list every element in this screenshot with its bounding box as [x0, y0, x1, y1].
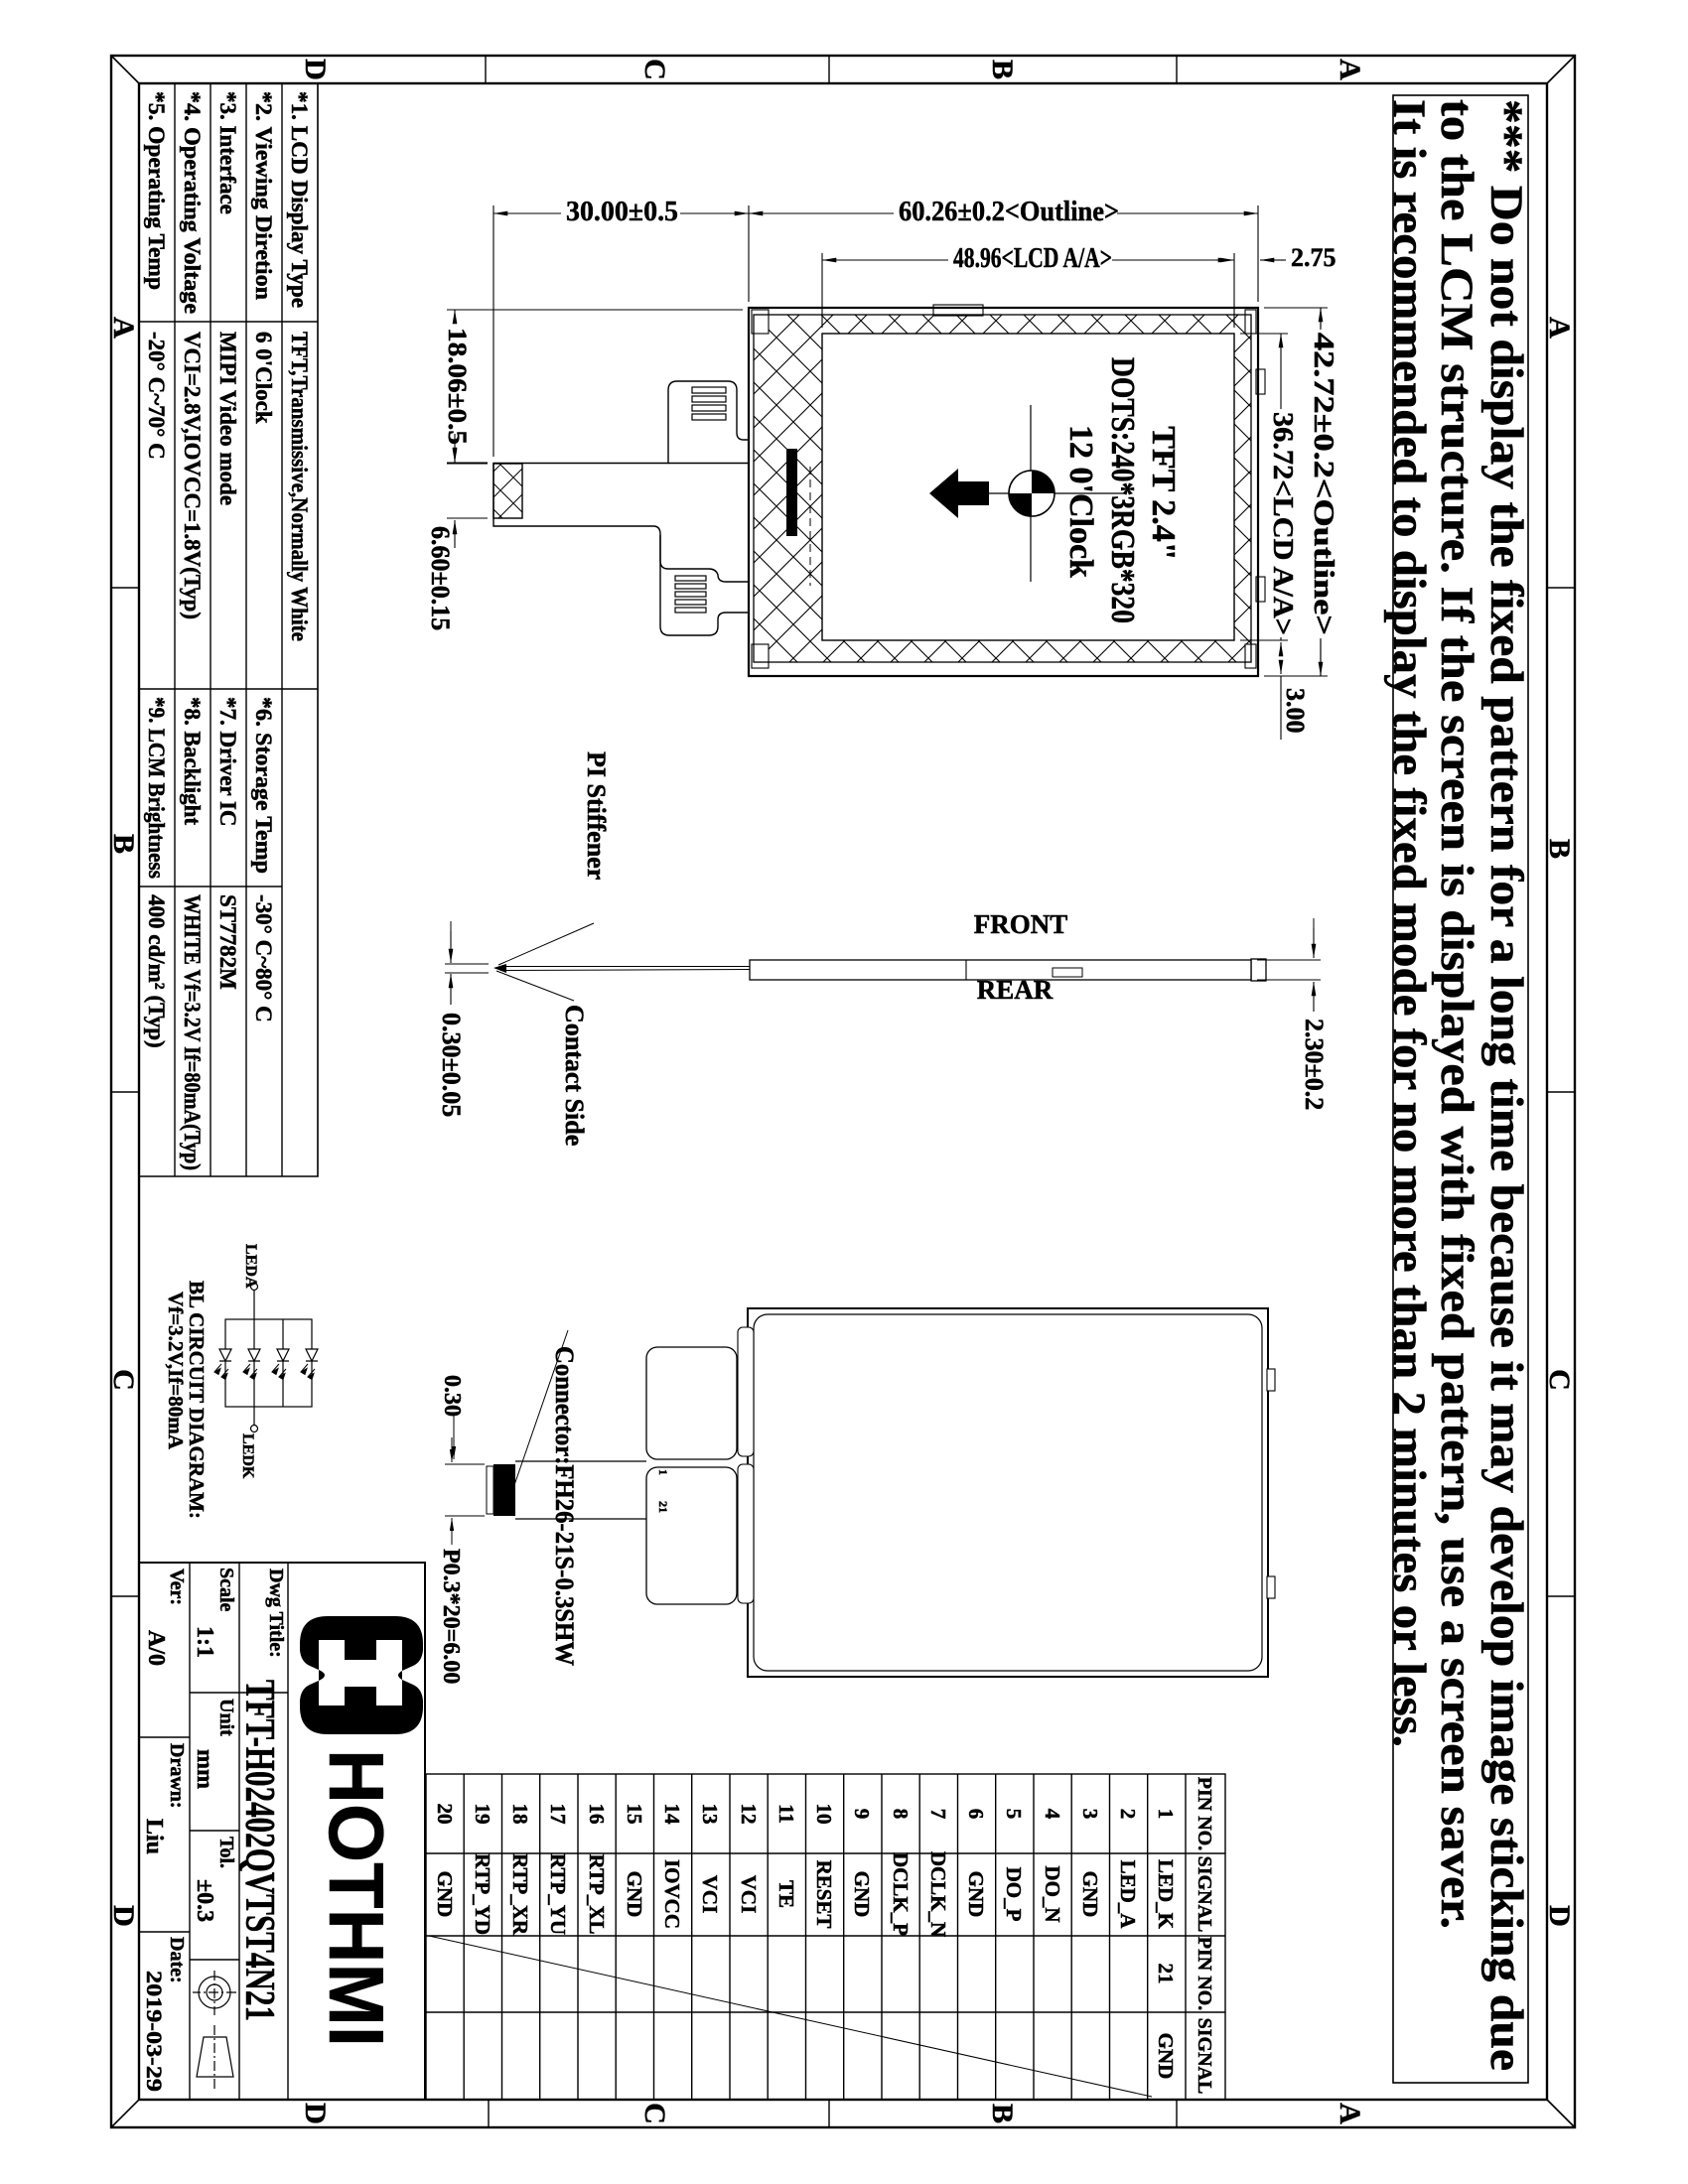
svg-text:60.26±0.2<Outline>: 60.26±0.2<Outline> [899, 196, 1119, 227]
svg-text:MIPI Video mode: MIPI Video mode [215, 332, 240, 505]
svg-text:Date:: Date: [166, 1937, 188, 1983]
svg-text:13: 13 [698, 1804, 722, 1825]
svg-text:1:1: 1:1 [192, 1626, 217, 1658]
svg-text:A: A [107, 317, 140, 339]
svg-text:6: 6 [964, 1809, 988, 1820]
svg-text:to the LCM structure. If the s: to the LCM structure. If the screen is d… [1431, 99, 1482, 1929]
svg-text:5: 5 [1002, 1809, 1026, 1820]
svg-text:B: B [986, 60, 1019, 79]
svg-text:DO_N: DO_N [1041, 1865, 1064, 1922]
svg-text:0.30: 0.30 [439, 1375, 465, 1417]
svg-text:Liu: Liu [141, 1819, 167, 1854]
svg-text:SIGNAL: SIGNAL [1194, 2018, 1215, 2095]
svg-text:DO_P: DO_P [1002, 1867, 1026, 1922]
svg-text:Drawn:: Drawn: [166, 1743, 188, 1809]
svg-text:*3. Interface: *3. Interface [215, 91, 240, 214]
svg-text:*2. Viewing Diretion: *2. Viewing Diretion [251, 91, 276, 300]
svg-text:RTP_XL: RTP_XL [585, 1854, 609, 1935]
svg-text:Ver:: Ver: [166, 1569, 188, 1605]
svg-text:LED_K: LED_K [1154, 1859, 1178, 1930]
svg-text:RTP_XR: RTP_XR [508, 1853, 532, 1936]
svg-text:C: C [638, 2103, 671, 2124]
svg-text:14: 14 [660, 1804, 684, 1826]
svg-text:36.72<LCD A/A>: 36.72<LCD A/A> [1267, 412, 1299, 635]
svg-text:10: 10 [812, 1804, 836, 1825]
svg-text:18.06±0.5: 18.06±0.5 [443, 328, 472, 445]
svg-text:Scale: Scale [215, 1568, 237, 1612]
svg-text:PI Stiffener: PI Stiffener [582, 751, 611, 880]
svg-text:-20° C~70° C: -20° C~70° C [144, 332, 169, 460]
svg-text:RESET: RESET [812, 1860, 836, 1929]
svg-text:A: A [1543, 317, 1576, 339]
svg-text:18: 18 [508, 1804, 532, 1825]
svg-text:HOTHMI: HOTHMI [313, 1749, 400, 2047]
svg-text:*7. Driver IC: *7. Driver IC [215, 697, 240, 827]
svg-text:42.72±0.2<Outline>: 42.72±0.2<Outline> [1308, 333, 1339, 635]
svg-text:P0.3*20=6.00: P0.3*20=6.00 [438, 1549, 464, 1684]
svg-text:IOVCC: IOVCC [660, 1859, 684, 1929]
svg-text:Connector:FH26-21S-0.3SHW: Connector:FH26-21S-0.3SHW [550, 1346, 579, 1666]
svg-text:RTP_YU: RTP_YU [546, 1853, 570, 1935]
svg-text:Vf=3.2V,If=80mA: Vf=3.2V,If=80mA [164, 1292, 188, 1450]
svg-text:12: 12 [737, 1804, 761, 1825]
svg-text:*1. LCD Display Type: *1. LCD Display Type [287, 91, 312, 308]
svg-text:C: C [1543, 1369, 1576, 1391]
svg-text:FRONT: FRONT [974, 909, 1068, 939]
svg-text:3: 3 [1078, 1809, 1102, 1820]
svg-text:RTP_YD: RTP_YD [471, 1853, 494, 1935]
svg-text:A/0: A/0 [143, 1630, 169, 1666]
svg-text:VCI: VCI [737, 1875, 761, 1914]
svg-text:DCLK_P: DCLK_P [889, 1852, 913, 1936]
svg-text:TFT,Transmissive,Normally Whit: TFT,Transmissive,Normally White [287, 332, 312, 641]
svg-text:2019-03-29: 2019-03-29 [142, 1971, 167, 2092]
svg-text:DCLK_N: DCLK_N [926, 1851, 950, 1937]
svg-text:*5. Operating Temp: *5. Operating Temp [144, 91, 169, 290]
svg-text:B: B [1543, 839, 1576, 859]
svg-text:mm: mm [192, 1749, 217, 1789]
svg-text:Dwg Title:: Dwg Title: [265, 1569, 287, 1658]
svg-text:A: A [1334, 2103, 1366, 2124]
svg-text:LED_A: LED_A [1116, 1860, 1140, 1930]
svg-text:TE: TE [774, 1880, 798, 1908]
svg-text:30.00±0.5: 30.00±0.5 [566, 196, 678, 227]
svg-text:TFT 2.4": TFT 2.4" [1145, 426, 1182, 560]
svg-text:15: 15 [623, 1804, 646, 1825]
svg-text:*9. LCM Brightness: *9. LCM Brightness [144, 697, 169, 879]
svg-text:17: 17 [546, 1804, 570, 1825]
svg-text:400 cd/m² (Typ): 400 cd/m² (Typ) [144, 894, 169, 1048]
svg-text:B: B [107, 834, 140, 854]
svg-text:WHITE Vf=3.2V If=80mA(Typ): WHITE Vf=3.2V If=80mA(Typ) [180, 894, 205, 1170]
svg-text:LEDK: LEDK [239, 1433, 256, 1479]
svg-text:PIN NO.: PIN NO. [1194, 1777, 1215, 1850]
svg-text:9: 9 [850, 1809, 874, 1820]
svg-text:D: D [299, 2103, 332, 2124]
svg-text:PIN NO.: PIN NO. [1194, 1937, 1215, 2010]
svg-text:1: 1 [1154, 1809, 1178, 1820]
svg-text:GND: GND [433, 1871, 457, 1918]
svg-text:16: 16 [585, 1804, 609, 1825]
svg-text:GND: GND [1078, 1871, 1102, 1918]
svg-text:4: 4 [1041, 1809, 1064, 1820]
svg-text:C: C [638, 59, 671, 80]
svg-text:6 0'Clock: 6 0'Clock [251, 332, 276, 424]
svg-text:VCI=2.8V,IOVCC=1.8V(Typ): VCI=2.8V,IOVCC=1.8V(Typ) [180, 332, 205, 619]
svg-text:REAR: REAR [977, 975, 1054, 1005]
svg-text:±0.3: ±0.3 [192, 1879, 217, 1922]
svg-text:12 0'Clock: 12 0'Clock [1062, 425, 1099, 578]
svg-text:DOTS:240*3RGB*320: DOTS:240*3RGB*320 [1104, 357, 1141, 623]
svg-text:GND: GND [964, 1871, 988, 1918]
svg-text:19: 19 [471, 1804, 494, 1825]
svg-text:Contact Side: Contact Side [560, 1005, 589, 1146]
svg-text:B: B [986, 2104, 1019, 2123]
svg-text:2.30±0.2: 2.30±0.2 [1300, 1019, 1329, 1110]
svg-text:3.00: 3.00 [1281, 688, 1310, 734]
svg-text:D: D [299, 59, 332, 80]
svg-text:2.75: 2.75 [1291, 243, 1336, 272]
svg-text:48.96<LCD A/A>: 48.96<LCD A/A> [953, 242, 1112, 274]
svg-text:GND: GND [1154, 2033, 1178, 2080]
svg-text:BL CIRCUIT DIAGRAM:: BL CIRCUIT DIAGRAM: [185, 1281, 209, 1519]
svg-text:*4. Operating Voltage: *4. Operating Voltage [180, 91, 205, 314]
svg-text:21: 21 [1154, 1964, 1178, 1984]
svg-text:21: 21 [656, 1501, 670, 1513]
svg-text:C: C [107, 1369, 140, 1391]
svg-text:*6. Storage Temp: *6. Storage Temp [251, 697, 276, 874]
svg-text:SIGNAL: SIGNAL [1194, 1856, 1215, 1933]
svg-text:-30° C~80° C: -30° C~80° C [251, 894, 276, 1023]
svg-text:*8. Backlight: *8. Backlight [180, 697, 205, 825]
svg-text:6.60±0.15: 6.60±0.15 [426, 526, 455, 630]
svg-text:11: 11 [774, 1804, 798, 1824]
svg-text:VCI: VCI [698, 1875, 722, 1914]
svg-text:7: 7 [926, 1809, 950, 1820]
svg-text:8: 8 [889, 1809, 913, 1820]
svg-text:0.30±0.05: 0.30±0.05 [437, 1013, 466, 1117]
svg-text:A: A [1334, 59, 1366, 80]
svg-text:Unit: Unit [215, 1699, 237, 1736]
svg-text:TFT-H02402QVTST4N21: TFT-H02402QVTST4N21 [236, 1680, 282, 2021]
svg-text:D: D [107, 1905, 140, 1927]
svg-text:Tol.: Tol. [215, 1837, 237, 1868]
svg-text:1: 1 [656, 1469, 670, 1475]
svg-text:*** Do not display the fixed p: *** Do not display the fixed pattern for… [1480, 99, 1532, 2071]
svg-text:2: 2 [1116, 1809, 1140, 1820]
svg-text:20: 20 [433, 1804, 457, 1825]
svg-text:GND: GND [623, 1871, 646, 1918]
svg-text:LEDA: LEDA [242, 1244, 259, 1289]
svg-text:It is recommended to display t: It is recommended to display the fixed m… [1383, 99, 1435, 1747]
svg-text:D: D [1543, 1905, 1576, 1927]
svg-text:GND: GND [850, 1871, 874, 1918]
svg-text:ST7782M: ST7782M [215, 894, 240, 990]
